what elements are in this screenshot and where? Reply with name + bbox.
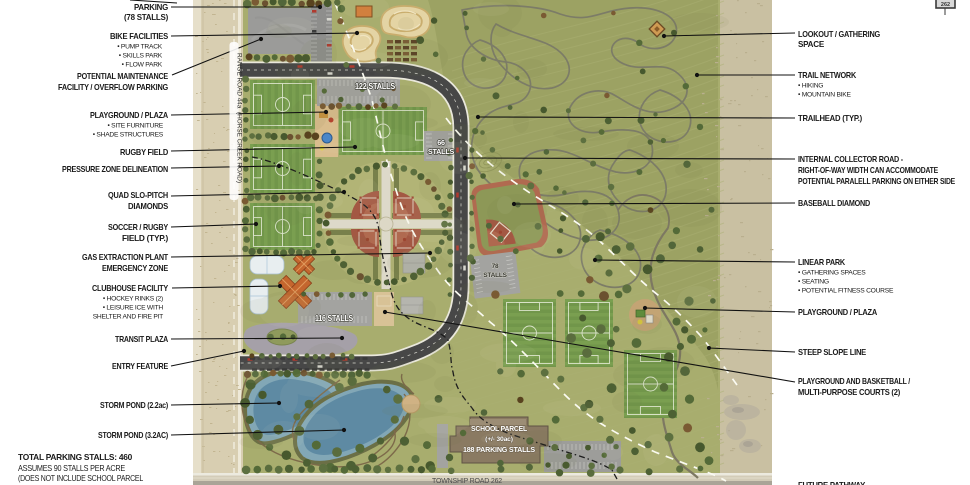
svg-text:(HORSE CREEK ROAD): (HORSE CREEK ROAD) <box>236 112 243 183</box>
svg-text:• SHADE STRUCTURES: • SHADE STRUCTURES <box>93 132 164 139</box>
svg-text:RIGHT-OF-WAY WIDTH CAN ACCOMMO: RIGHT-OF-WAY WIDTH CAN ACCOMMODATE <box>798 166 939 175</box>
svg-text:BIKE FACILITIES: BIKE FACILITIES <box>110 32 169 41</box>
svg-text:262: 262 <box>941 2 950 8</box>
svg-text:PLAYGROUND AND BASKETBALL /: PLAYGROUND AND BASKETBALL / <box>798 377 911 386</box>
svg-text:122 STALLS: 122 STALLS <box>355 82 396 91</box>
svg-text:TRAIL NETWORK: TRAIL NETWORK <box>798 71 856 80</box>
svg-text:STEEP SLOPE LINE: STEEP SLOPE LINE <box>798 348 867 357</box>
svg-text:66: 66 <box>437 138 445 147</box>
svg-text:TOWNSHIP ROAD 262: TOWNSHIP ROAD 262 <box>432 478 502 485</box>
svg-text:• SKILLS PARK: • SKILLS PARK <box>119 53 163 60</box>
svg-text:TRAILHEAD (TYP.): TRAILHEAD (TYP.) <box>798 114 862 123</box>
svg-text:TRANSIT PLAZA: TRANSIT PLAZA <box>115 335 168 344</box>
svg-text:MULTI-PURPOSE COURTS (2): MULTI-PURPOSE COURTS (2) <box>798 388 900 397</box>
svg-text:(78 STALLS): (78 STALLS) <box>124 13 168 22</box>
svg-text:GAS EXTRACTION PLANT: GAS EXTRACTION PLANT <box>82 253 168 262</box>
svg-text:• FLOW PARK: • FLOW PARK <box>122 62 163 69</box>
svg-text:SCHOOL PARCEL: SCHOOL PARCEL <box>471 424 528 433</box>
svg-text:PLAYGROUND / PLAZA: PLAYGROUND / PLAZA <box>90 111 168 120</box>
svg-text:INTERNAL COLLECTOR ROAD -: INTERNAL COLLECTOR ROAD - <box>798 155 903 164</box>
svg-text:QUAD SLO-PITCH: QUAD SLO-PITCH <box>108 191 168 200</box>
svg-text:• HOCKEY RINKS (2): • HOCKEY RINKS (2) <box>103 296 163 303</box>
svg-text:POTENTIAL PARALELL PARKING ON: POTENTIAL PARALELL PARKING ON EITHER SID… <box>798 177 956 186</box>
svg-text:TOTAL PARKING STALLS: 460: TOTAL PARKING STALLS: 460 <box>18 453 133 462</box>
svg-text:(+/- 30ac): (+/- 30ac) <box>485 436 513 443</box>
svg-text:• GATHERING SPACES: • GATHERING SPACES <box>798 270 866 277</box>
svg-text:188 PARKING STALLS: 188 PARKING STALLS <box>463 445 535 454</box>
svg-text:• HIKING: • HIKING <box>798 83 823 90</box>
svg-text:PLAYGROUND / PLAZA: PLAYGROUND / PLAZA <box>798 308 877 317</box>
svg-text:FUTURE PATHWAY: FUTURE PATHWAY <box>798 481 866 485</box>
svg-text:• SEATING: • SEATING <box>798 279 829 286</box>
svg-text:RANGE ROAD 44a: RANGE ROAD 44a <box>236 53 243 109</box>
svg-text:116 STALLS: 116 STALLS <box>315 314 354 323</box>
svg-text:• POTENTIAL FITNESS COURSE: • POTENTIAL FITNESS COURSE <box>798 288 894 295</box>
svg-text:78: 78 <box>492 263 499 270</box>
svg-text:EMERGENCY ZONE: EMERGENCY ZONE <box>102 264 169 273</box>
svg-text:(DOES NOT INCLUDE SCHOOL PARCE: (DOES NOT INCLUDE SCHOOL PARCEL <box>18 474 144 483</box>
svg-text:FACILITY / OVERFLOW PARKING: FACILITY / OVERFLOW PARKING <box>58 83 168 92</box>
svg-text:FIELD (TYP.): FIELD (TYP.) <box>122 234 169 243</box>
svg-text:SPACE: SPACE <box>798 40 825 49</box>
svg-text:SHELTER AND FIRE PIT: SHELTER AND FIRE PIT <box>93 314 163 321</box>
svg-text:STORM POND (2.2ac): STORM POND (2.2ac) <box>100 401 168 410</box>
svg-text:DIAMONDS: DIAMONDS <box>128 202 169 211</box>
svg-text:PARKING: PARKING <box>134 3 168 12</box>
svg-text:ASSUMES 90 STALLS PER ACRE: ASSUMES 90 STALLS PER ACRE <box>18 464 126 473</box>
svg-text:STALLS: STALLS <box>483 272 507 279</box>
svg-text:BASEBALL DIAMOND: BASEBALL DIAMOND <box>798 199 870 208</box>
svg-text:SOCCER / RUGBY: SOCCER / RUGBY <box>108 223 169 232</box>
svg-text:• MOUNTAIN BIKE: • MOUNTAIN BIKE <box>798 92 852 99</box>
svg-text:• PUMP TRACK: • PUMP TRACK <box>117 44 163 51</box>
svg-text:• LEISURE ICE WITH: • LEISURE ICE WITH <box>103 305 164 312</box>
svg-text:POTENTIAL MAINTENANCE: POTENTIAL MAINTENANCE <box>77 72 169 81</box>
svg-text:PRESSURE ZONE DELINEATION: PRESSURE ZONE DELINEATION <box>62 165 168 174</box>
svg-text:• SITE FURNITURE: • SITE FURNITURE <box>107 123 163 130</box>
svg-text:STALLS: STALLS <box>428 147 455 156</box>
svg-text:LINEAR PARK: LINEAR PARK <box>798 258 845 267</box>
svg-text:RUGBY FIELD: RUGBY FIELD <box>120 148 168 157</box>
svg-text:CLUBHOUSE FACILITY: CLUBHOUSE FACILITY <box>92 284 169 293</box>
svg-text:LOOKOUT / GATHERING: LOOKOUT / GATHERING <box>798 30 880 39</box>
svg-text:ENTRY FEATURE: ENTRY FEATURE <box>112 362 169 371</box>
svg-text:STORM POND (3.2AC): STORM POND (3.2AC) <box>98 431 168 440</box>
